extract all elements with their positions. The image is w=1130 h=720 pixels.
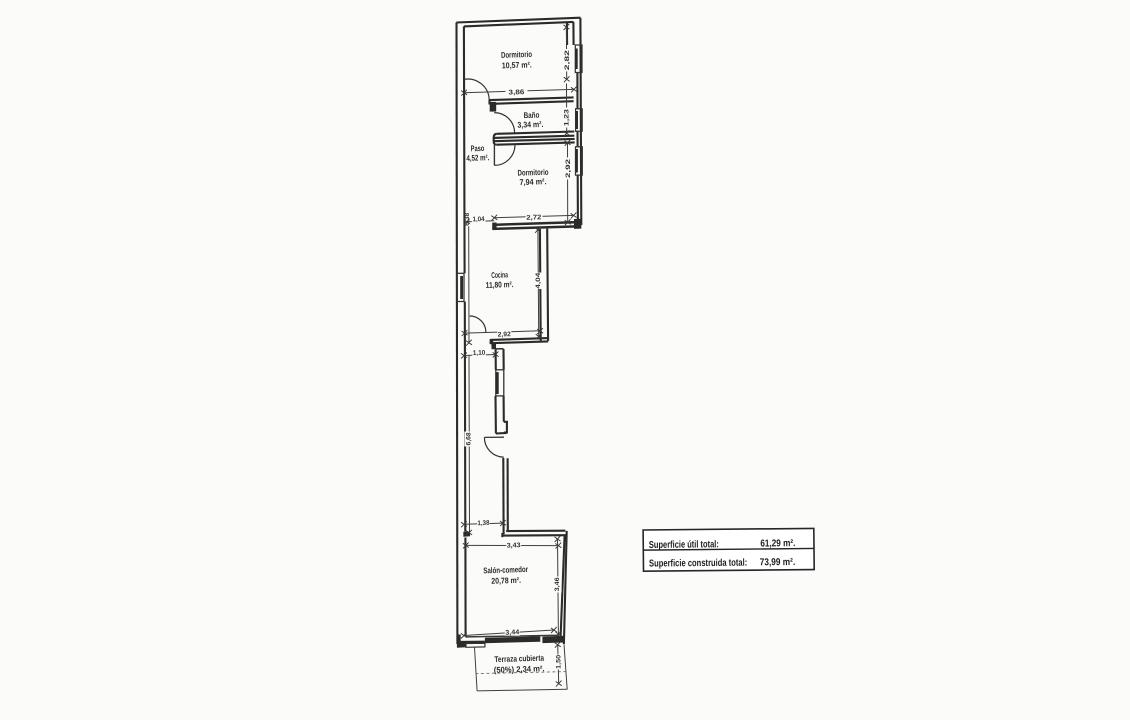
svg-text:1,10: 1,10: [473, 350, 486, 357]
svg-text:73,99 m².: 73,99 m².: [760, 557, 796, 568]
svg-text:3,43: 3,43: [507, 542, 521, 549]
svg-text:7,94 m².: 7,94 m².: [519, 176, 546, 187]
svg-text:3,46: 3,46: [554, 577, 561, 591]
svg-text:1,04: 1,04: [472, 216, 484, 223]
svg-text:2,92: 2,92: [565, 159, 572, 178]
svg-text:11,80 m².: 11,80 m².: [486, 279, 514, 290]
svg-text:Dormitorio: Dormitorio: [501, 49, 532, 60]
svg-text:6,68: 6,68: [466, 432, 473, 445]
svg-text:Superficie construida total:: Superficie construida total:: [649, 558, 747, 570]
svg-text:10,57 m².: 10,57 m².: [502, 59, 532, 70]
svg-text:1,38: 1,38: [477, 520, 489, 527]
svg-text:6,38: 6,38: [464, 213, 471, 226]
svg-text:Superficie útil total:: Superficie útil total:: [649, 539, 719, 551]
svg-text:4,52 m².: 4,52 m².: [466, 152, 489, 163]
svg-text:Terraza cubierta: Terraza cubierta: [494, 653, 544, 665]
svg-text:3,86: 3,86: [508, 89, 524, 97]
svg-text:61,29 m².: 61,29 m².: [760, 538, 795, 549]
svg-text:2,72: 2,72: [526, 214, 541, 221]
svg-text:3,34 m².: 3,34 m².: [517, 119, 543, 130]
svg-text:20,78 m².: 20,78 m².: [491, 575, 521, 586]
svg-text:3,44: 3,44: [505, 629, 520, 637]
svg-text:4,04: 4,04: [535, 272, 542, 288]
svg-text:2,92: 2,92: [498, 331, 511, 338]
svg-text:2,82: 2,82: [564, 50, 571, 70]
svg-text:(50%) 2,34 m².: (50%) 2,34 m².: [494, 663, 545, 675]
svg-text:Salón-comedor: Salón-comedor: [483, 564, 529, 575]
svg-text:1,50: 1,50: [556, 655, 563, 669]
svg-text:1,23: 1,23: [564, 109, 571, 126]
